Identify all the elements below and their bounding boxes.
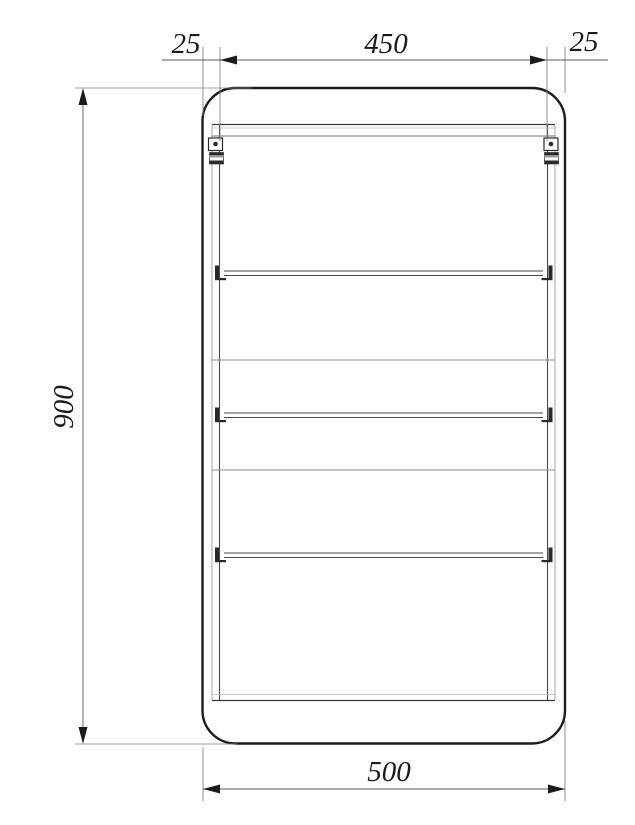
shelf-support-left [215, 408, 226, 423]
arrowhead-right-icon [548, 785, 565, 794]
dim-label-top-left: 25 [172, 28, 201, 60]
technical-drawing-canvas: 25 450 25 900 500 [0, 0, 635, 825]
cabinet-front-view [203, 88, 566, 744]
drawing-sheet: 25 450 25 900 500 [0, 0, 635, 825]
hinge-pin-right [549, 142, 554, 147]
arrowhead-right-icon [530, 56, 547, 65]
arrowhead-left-icon [203, 785, 220, 794]
shelf-support-left [215, 548, 226, 563]
dim-label-height: 900 [48, 385, 80, 429]
dim-label-top-right: 25 [570, 26, 599, 58]
cabinet-outline [203, 88, 566, 744]
hinge-left [209, 138, 224, 164]
bottom-rail [212, 695, 555, 701]
dimension-top: 25 450 25 [162, 26, 608, 141]
dimension-left: 900 [48, 88, 252, 744]
arrowhead-up-icon [79, 88, 88, 105]
shelf-2 [215, 408, 553, 423]
shelf-1 [215, 266, 553, 281]
hinge-right [544, 138, 559, 164]
top-rail [212, 125, 555, 137]
dimension-bottom: 500 [203, 721, 565, 801]
shelf-3 [215, 548, 553, 563]
arrowhead-down-icon [79, 727, 88, 744]
dim-label-top-center: 450 [364, 28, 408, 60]
hinge-pin-left [213, 142, 218, 147]
dim-label-width: 500 [367, 756, 411, 788]
shelf-support-left [215, 266, 226, 281]
arrowhead-left-icon [220, 56, 237, 65]
